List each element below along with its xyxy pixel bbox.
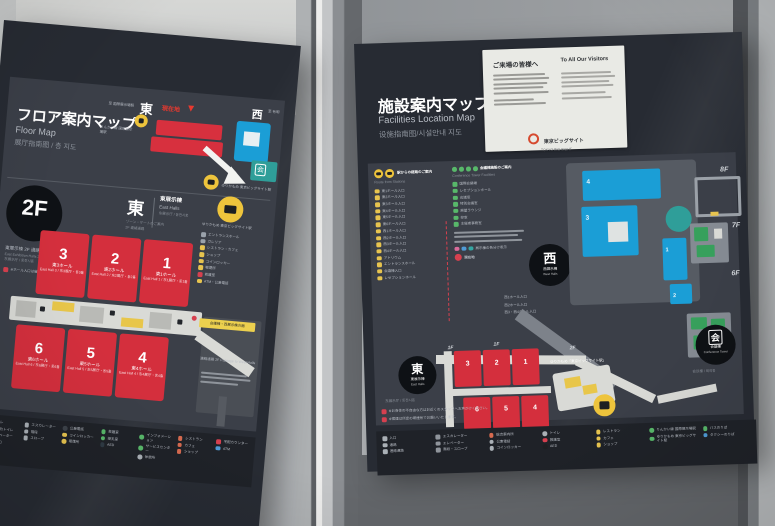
visitor-notice-card: ご来場の皆様へ To All Our Visitors 東京ビッグサイト TOK…: [482, 46, 627, 152]
facility-icon: [192, 316, 197, 321]
station-icon: [374, 169, 383, 178]
you-are-here-arrow-icon: [188, 105, 195, 112]
facility-icon: [110, 310, 115, 315]
hall-block: 3 東3ホール East Hall 3 / 东3展厅・동3홀: [35, 230, 89, 298]
bigsight-logo: 東京ビッグサイト TOKYO BIG SIGHT: [485, 127, 628, 153]
right-sign-subtitle-en: Facilities Location Map: [378, 112, 475, 126]
route-header-en: Route from Stations: [374, 178, 444, 185]
west-entrance-labels: 西1ホール入口西2ホール入口西3・西4ホール入口: [504, 293, 569, 317]
facilities-map-board: 駅からの経路のご案内 Route from Stations 東1ホール入口東2…: [368, 152, 744, 425]
east-poi-badge: 東 東展示棟 East Halls: [398, 356, 437, 395]
facility-list: エントランスホールガレリアレストラン・カフェショップコインロッカー喫煙所救護室A…: [197, 232, 271, 291]
east-section-cjk: 东展示厅 / 동전시동: [159, 211, 189, 218]
floor-mark-walk: 2F: [570, 345, 576, 351]
hall-block: 4 東4ホール East Hall 4 / 东4展厅・동4홀: [115, 333, 169, 401]
east-section-char: 東: [126, 198, 145, 218]
station-icon: [385, 169, 394, 178]
route-legend: 駅からの経路のご案内 Route from Stations 東1ホール入口東2…: [374, 167, 448, 282]
east-section-jp: 東展示棟: [160, 196, 182, 204]
floor-map-signboard: フロア案内マップ Floor Map 展厅指南图 / 층 지도 至 国際展示場駅…: [0, 20, 301, 526]
corridor-entrance-yellow: [52, 301, 75, 312]
facility-icon: [177, 319, 182, 324]
west-atrium: [608, 221, 629, 242]
overview-minimap: 至 国際展示場駅 東 現在地 西 至 有明 会: [93, 89, 283, 200]
minimap-west-label: 西: [251, 106, 263, 123]
east-section-sub2: 2F 連絡通路: [125, 225, 144, 231]
conference-plan-7f: [690, 222, 729, 263]
notice-body-jp: [493, 70, 550, 108]
left-sign-subtitle-cjk: 展厅指南图 / 층 지도: [14, 137, 77, 152]
left-sign-subtitle-en: Floor Map: [15, 124, 56, 137]
floor-label-8f: 8F: [720, 166, 728, 173]
east-cjk: 东展示厅 / 동전시동: [385, 397, 441, 403]
east-section-en: East Halls: [159, 204, 180, 211]
notice-body-en: [561, 68, 616, 102]
station-icon-kokusai: [134, 114, 148, 128]
corridor-cell: [79, 306, 104, 324]
floor-label-6f: 6F: [731, 270, 739, 277]
walkway-stem: [216, 396, 227, 427]
facility-icon: [40, 306, 45, 311]
hall-block: 6 東6ホール East Hall 6 / 东6展厅・동6홀: [11, 324, 65, 392]
conference-cjk: 会议楼 / 회의동: [692, 368, 744, 374]
station1-label: りんかい線 国際展示場駅: [99, 125, 134, 137]
floor-label-7f: 7F: [732, 222, 740, 229]
corridor-entrance-yellow: [121, 317, 144, 328]
west-hall-1: 1: [662, 238, 687, 281]
facilities-map-signboard: 施設案内マップ Facilities Location Map 设施指南图/시설…: [354, 32, 755, 472]
minimap-west-atrium: [243, 131, 260, 146]
walkway-to-conference: [657, 384, 717, 404]
route-dashed-line: [446, 221, 450, 321]
east-halls-upper: 321: [454, 348, 540, 387]
notice-title-en: To All Our Visitors: [561, 56, 609, 63]
plan-room: [710, 212, 718, 216]
floor-map-board: フロア案内マップ Floor Map 展厅指南图 / 층 지도 至 国際展示場駅…: [0, 77, 285, 432]
conf-header-en: Conference Tower Facilities: [452, 171, 528, 178]
hall-block: 5 東5ホール East Hall 5 / 东5展厅・동5홀: [63, 329, 117, 397]
minimap-direction-right: 至 有明: [268, 109, 286, 115]
photo-of-two-signboards: フロア案内マップ Floor Map 展厅指南图 / 층 지도 至 国際展示場駅…: [0, 0, 775, 526]
west-hall-4: 4: [582, 168, 661, 200]
minimap-direction-left: 至 国際展示場駅: [100, 101, 134, 108]
east-halls-lower-row: 6 東6ホール East Hall 6 / 东6展厅・동6홀 5 東5ホール E…: [11, 324, 169, 401]
you-are-here-label: 現在地: [162, 103, 181, 114]
corridor-cell: [149, 312, 172, 330]
east-halls-upper-row: 3 東3ホール East Hall 3 / 东3展厅・동3홀 2 東2ホール E…: [35, 230, 193, 307]
west-poi-badge: 西 西展示棟 West Halls: [528, 243, 571, 286]
bigsight-logo-icon: [528, 133, 539, 144]
right-sign-subtitle-cjk: 设施指南图/시설안내 지도: [379, 127, 462, 141]
floor-mark-west: 1F: [493, 342, 499, 348]
conference-legend: 会議棟施設のご案内 Conference Tower Facilities 国際…: [452, 165, 531, 264]
wall-pillar-between-signs: [296, 0, 362, 526]
conference-poi-badge: 会 会議棟 Conference Tower: [695, 324, 736, 365]
station-icon-big: [593, 394, 616, 417]
corridor-cell: [15, 300, 36, 318]
hall-block: 2 東2ホール East Hall 2 / 东2展厅・동2홀: [87, 235, 141, 303]
notice-title-jp: ご来場の皆様へ: [493, 58, 539, 69]
hall-block: 1 東1ホール East Hall 1 / 东1展厅・동1홀: [139, 239, 193, 307]
conference-plan-8f: [694, 176, 741, 217]
west-hall-2: 2: [670, 284, 693, 305]
